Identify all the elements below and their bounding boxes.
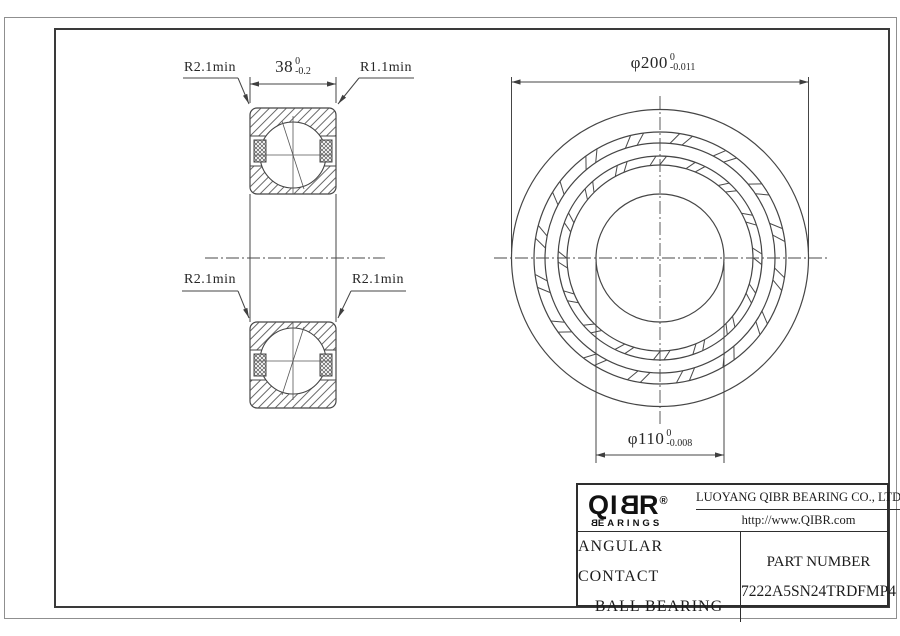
radius-label-top-left: R2.1min bbox=[184, 60, 236, 76]
cage-left bbox=[254, 140, 266, 162]
radius-label-mid-left: R2.1min bbox=[184, 272, 236, 288]
cage-left bbox=[254, 354, 266, 376]
company-logo: QIBR® BEARINGS bbox=[578, 485, 696, 531]
cage-right bbox=[320, 140, 332, 162]
part-number-cell: PART NUMBER 7222A5SN24TRDFMP4 bbox=[741, 532, 896, 622]
product-name-line2: BALL BEARING bbox=[595, 592, 723, 622]
section-view bbox=[205, 108, 385, 408]
registered-trademark: ® bbox=[660, 495, 668, 507]
company-name: LUOYANG QIBR BEARING CO., LTD bbox=[696, 485, 900, 510]
radius-label-top-right: R1.1min bbox=[360, 60, 412, 76]
logo-wordmark: QIBR® bbox=[588, 488, 696, 518]
bore-diameter-dimension: φ110 0 -0.008 bbox=[628, 428, 693, 449]
product-name-line1: ANGULAR CONTACT bbox=[578, 532, 740, 592]
product-name-cell: ANGULAR CONTACT BALL BEARING bbox=[578, 532, 741, 622]
logo-subtitle: BEARINGS bbox=[588, 518, 696, 529]
title-block: QIBR® BEARINGS LUOYANG QIBR BEARING CO.,… bbox=[576, 483, 889, 607]
width-dimension: 38 0 -0.2 bbox=[275, 56, 311, 77]
front-view bbox=[494, 96, 828, 424]
section-bottom-half bbox=[250, 322, 336, 408]
part-number-value: 7222A5SN24TRDFMP4 bbox=[741, 577, 896, 607]
part-number-label: PART NUMBER bbox=[767, 547, 871, 577]
radius-label-mid-right: R2.1min bbox=[352, 272, 404, 288]
company-website: http://www.QIBR.com bbox=[696, 510, 900, 531]
outer-diameter-dimension: φ200 0 -0.011 bbox=[631, 52, 696, 73]
cage-right bbox=[320, 354, 332, 376]
section-top-half bbox=[250, 108, 336, 194]
drawing-sheet: R2.1min R1.1min R2.1min R2.1min 38 0 -0.… bbox=[0, 0, 900, 636]
